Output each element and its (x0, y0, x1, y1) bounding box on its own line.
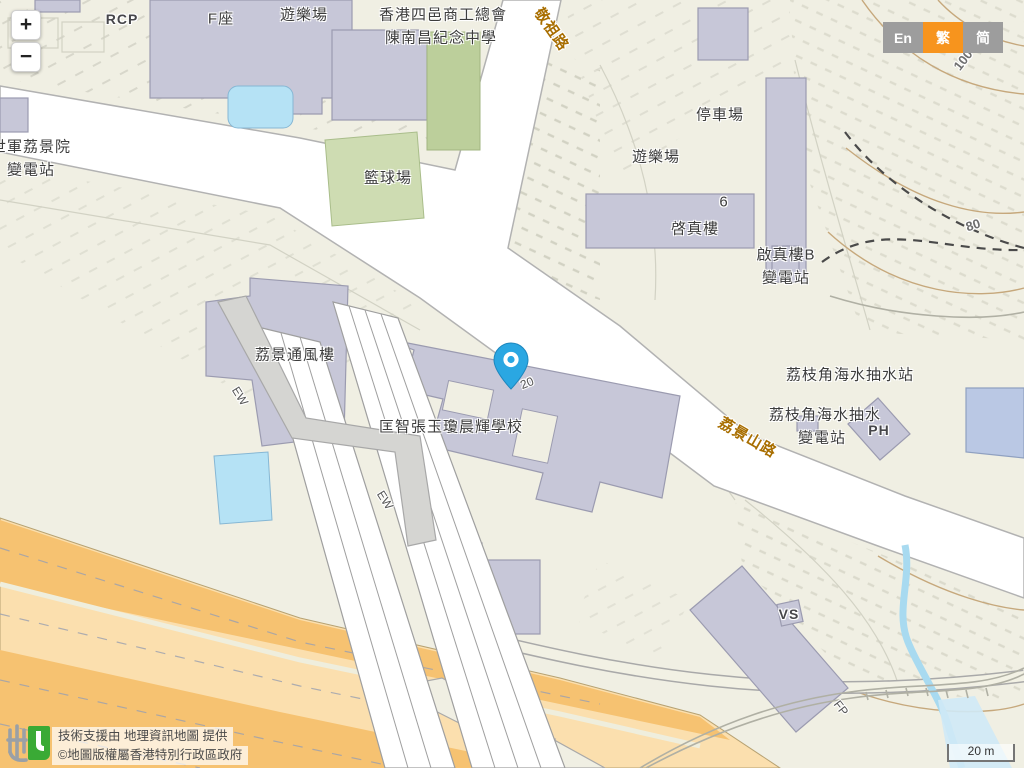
language-button-繁[interactable]: 繁 (923, 22, 963, 53)
geoinfo-map-logo-icon[interactable] (6, 718, 52, 765)
zoom-control: + − (11, 10, 41, 72)
language-button-简[interactable]: 简 (963, 22, 1003, 53)
map-viewport[interactable]: RCPF座遊樂場香港四邑商工總會陳南昌紀念中學敬祖路世軍荔景院變電站停車場遊樂場… (0, 0, 1024, 768)
scale-bar: 20 m (947, 744, 1015, 762)
language-button-En[interactable]: En (883, 22, 923, 53)
pin-center (507, 356, 514, 363)
attribution-line1: 技術支援由 地理資訊地圖 提供 (52, 727, 233, 746)
blue-location-pin[interactable] (491, 340, 531, 392)
language-switcher: En繁简 (883, 22, 1003, 53)
attribution: 技術支援由 地理資訊地圖 提供 ©地圖版權屬香港特別行政區政府 (6, 718, 248, 765)
zoom-out-button[interactable]: − (11, 42, 41, 72)
zoom-in-button[interactable]: + (11, 10, 41, 40)
attribution-line2: ©地圖版權屬香港特別行政區政府 (52, 746, 248, 765)
